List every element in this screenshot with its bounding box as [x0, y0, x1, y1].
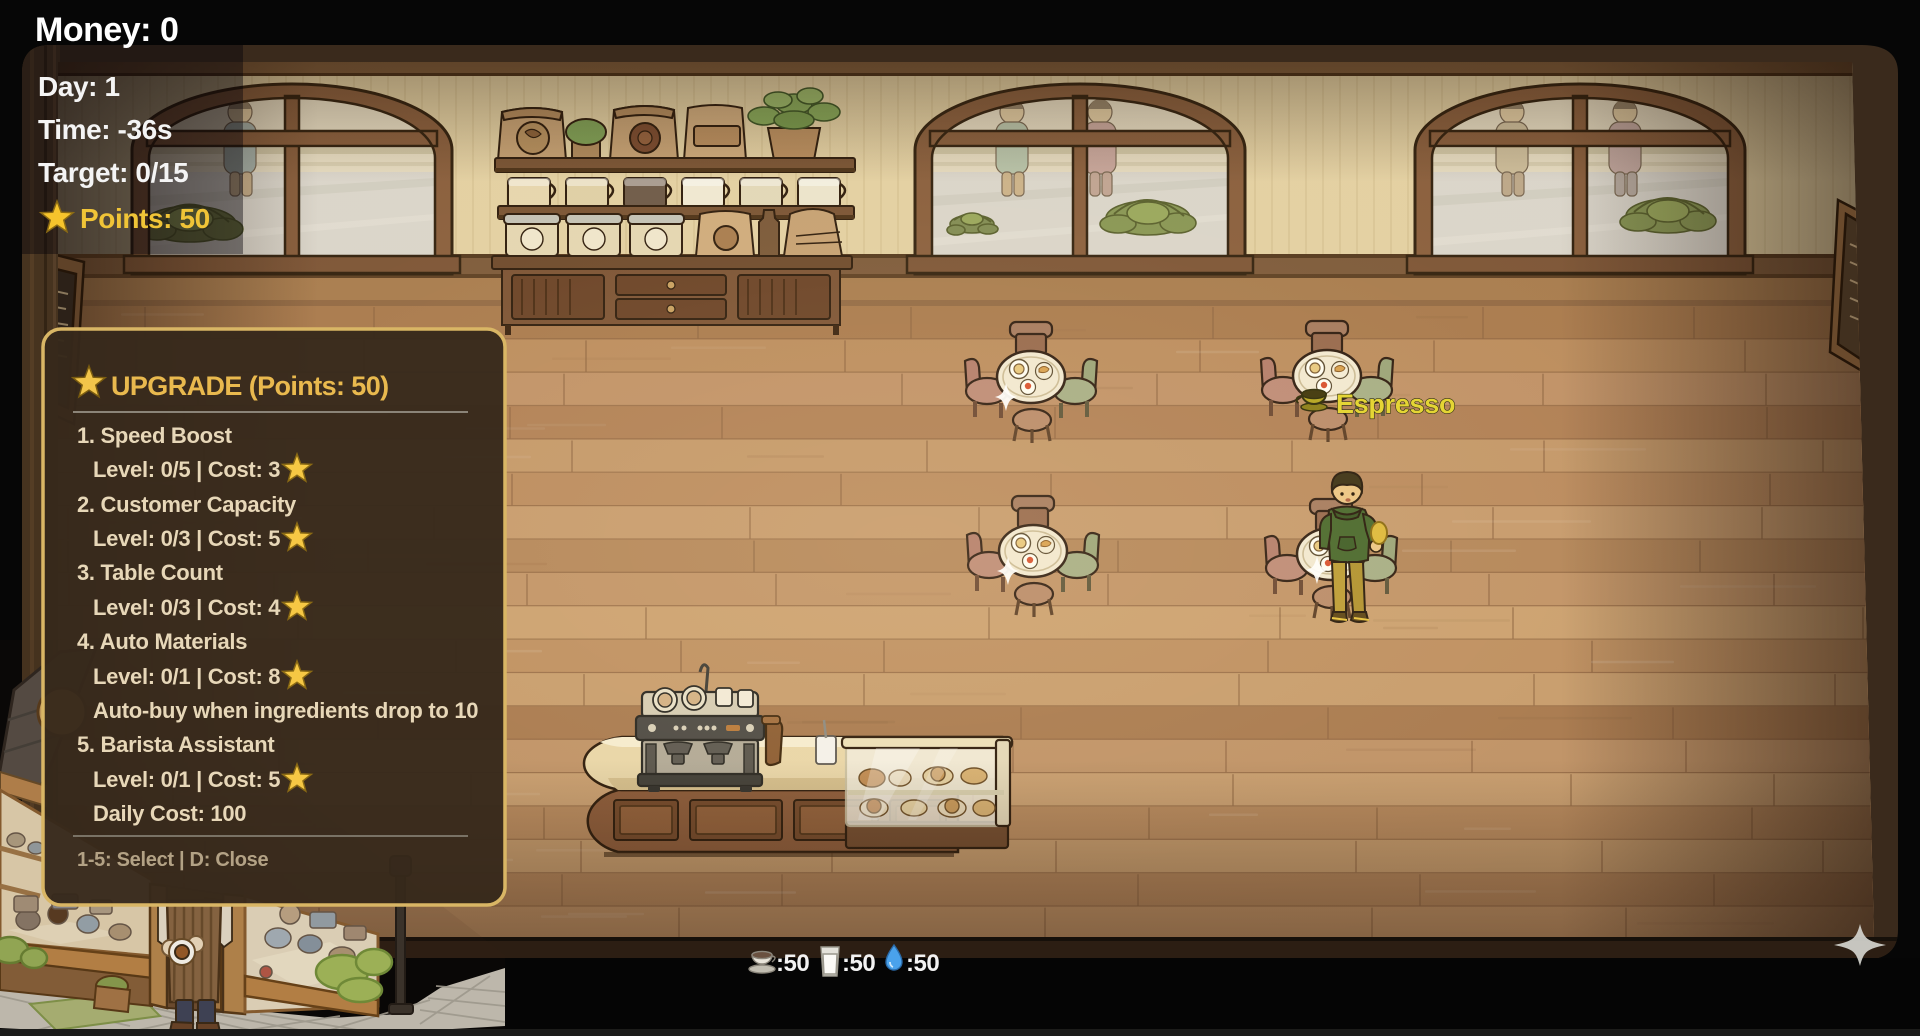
svg-text:Daily Cost: 100: Daily Cost: 100 — [93, 801, 246, 826]
svg-text:Level: 0/1 | Cost: 8: Level: 0/1 | Cost: 8 — [93, 664, 280, 689]
svg-text:2. Customer Capacity: 2. Customer Capacity — [77, 492, 297, 517]
svg-text:Level: 0/3 | Cost: 5: Level: 0/3 | Cost: 5 — [93, 526, 280, 551]
svg-text:5. Barista Assistant: 5. Barista Assistant — [77, 732, 275, 757]
svg-text::50: :50 — [906, 950, 939, 977]
svg-text:Target: 0/15: Target: 0/15 — [38, 157, 188, 188]
svg-text:Level: 0/1 | Cost: 5: Level: 0/1 | Cost: 5 — [93, 767, 280, 792]
svg-text:Level: 0/5 | Cost: 3: Level: 0/5 | Cost: 3 — [93, 457, 280, 482]
svg-text:Points: 50: Points: 50 — [80, 203, 210, 234]
svg-text:4. Auto Materials: 4. Auto Materials — [77, 629, 247, 654]
svg-text:Money: 0: Money: 0 — [35, 11, 178, 49]
svg-text:1. Speed Boost: 1. Speed Boost — [77, 423, 233, 448]
svg-text:1-5: Select | D: Close: 1-5: Select | D: Close — [77, 849, 268, 871]
svg-text:UPGRADE (Points: 50): UPGRADE (Points: 50) — [111, 371, 389, 401]
svg-text:Day: 1: Day: 1 — [38, 71, 120, 102]
svg-text::50: :50 — [842, 950, 875, 977]
svg-text:Auto-buy when ingredients drop: Auto-buy when ingredients drop to 10 — [93, 698, 478, 723]
svg-text:Level: 0/3 | Cost: 4: Level: 0/3 | Cost: 4 — [93, 595, 281, 620]
svg-text::50: :50 — [776, 950, 809, 977]
svg-text:Time: -36s: Time: -36s — [38, 114, 172, 145]
svg-text:3. Table Count: 3. Table Count — [77, 560, 224, 585]
